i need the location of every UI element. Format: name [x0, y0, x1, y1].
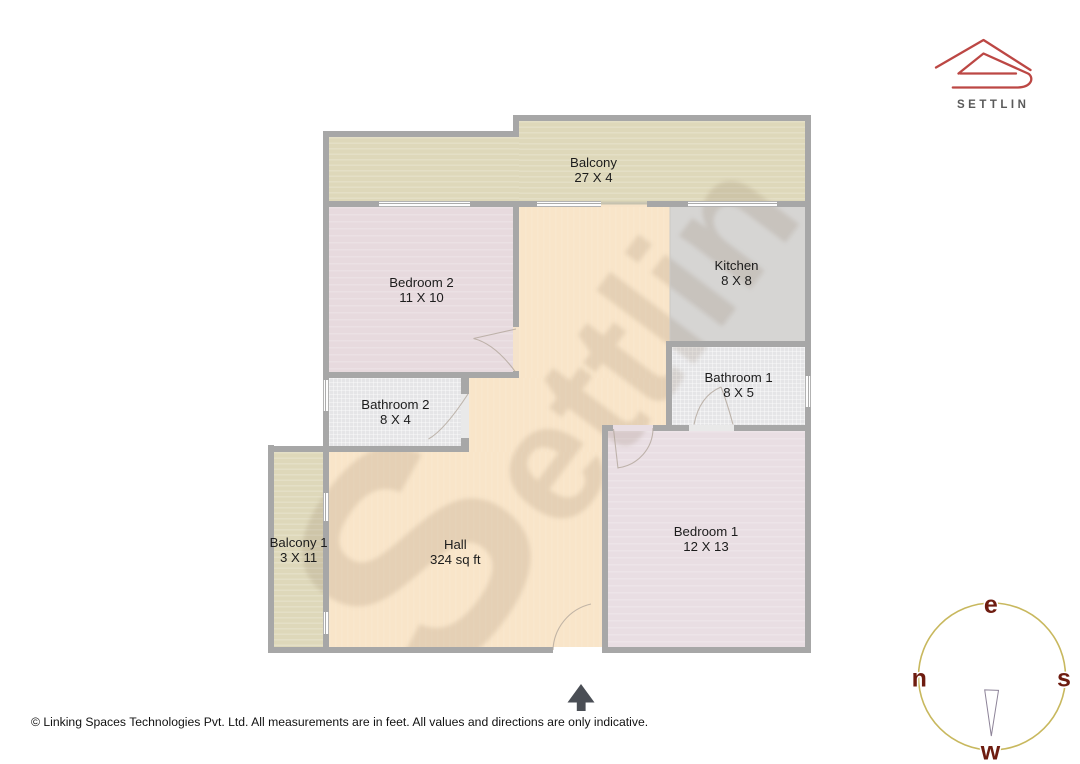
svg-text:n: n	[912, 664, 927, 692]
svg-text:s: s	[1057, 664, 1071, 692]
svg-text:e: e	[984, 591, 998, 619]
svg-text:w: w	[980, 738, 1001, 764]
